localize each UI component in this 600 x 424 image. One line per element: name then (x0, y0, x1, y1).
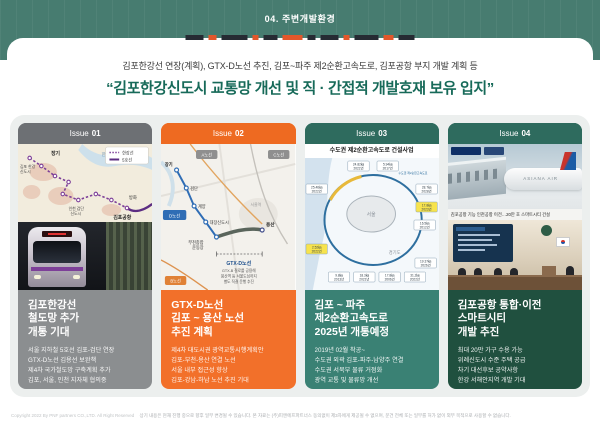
card-body-line: 서울 내부 접근성 향상 (171, 366, 285, 376)
svg-text:5.94㎞: 5.94㎞ (382, 161, 392, 166)
card-body: 최대 20만 가구 수용 가능 위례신도시 수준 주택 공급 차기 대선후보 공… (458, 346, 572, 386)
card-title-line: 개발 추진 (458, 326, 572, 339)
subway-train-photo (18, 222, 152, 290)
card-title: 김포한강선 철도망 추가 개통 기대 (28, 299, 142, 339)
svg-text:별도 직결 운행 추진: 별도 직결 운행 추진 (224, 279, 255, 284)
svg-text:25.46㎞: 25.46㎞ (311, 184, 323, 189)
card-body: 서울 지하철 5호선 김포-검단 연장 GTX-D노선 김용선 보완책 제4차 … (28, 346, 142, 386)
train-interior (106, 222, 152, 290)
road-segment-label: 17.8㎞ 2006년 (378, 272, 399, 282)
airport-news-photo: ASIANA AIR 김포공항 기능 인천공항 이전…20만 호 스마트시티 건… (448, 144, 582, 220)
card-body-line: 제4차 국가철도망 구축계획 추가 (28, 366, 142, 376)
svg-text:검단: 검단 (190, 185, 198, 191)
svg-text:한강선: 한강선 (122, 149, 134, 155)
svg-text:2006년: 2006년 (384, 277, 394, 282)
svg-text:신도시: 신도시 (20, 169, 31, 174)
issue-label: Issue (356, 129, 375, 138)
road-segment-label: 9.8㎞ 2013년 (328, 272, 349, 282)
svg-text:31.2㎞: 31.2㎞ (410, 272, 420, 277)
issue-number: 01 (92, 129, 101, 138)
airplane-tail (560, 152, 576, 170)
svg-text:2017년: 2017년 (382, 166, 392, 171)
svg-text:C노선: C노선 (274, 151, 285, 157)
news-banner (451, 147, 481, 155)
presentation-screen (453, 224, 513, 262)
road-segment-label: 28.7㎞ 2028년 (415, 184, 436, 194)
train-headlight (73, 275, 80, 279)
card-title-line: GTX-D노선 (171, 299, 285, 312)
line-pill-d: D노선 (163, 210, 186, 220)
line-pill-a: A노선 (196, 150, 217, 159)
issue-number: 03 (378, 129, 387, 138)
road-segment-label: 18.3㎞ 2021년 (353, 272, 374, 282)
svg-text:19.37㎞: 19.37㎞ (420, 258, 432, 263)
svg-text:2022년: 2022년 (409, 277, 419, 282)
card-title-line: 김포한강선 (28, 299, 142, 312)
train-front (28, 227, 86, 287)
card-title-line: 김포공항 통합·이전 (458, 299, 572, 312)
card-body-line: 한강 서해안지역 개발 기대 (458, 376, 572, 386)
assembly-photo (448, 220, 582, 290)
svg-text:방화: 방화 (129, 194, 137, 201)
card-body-line: 김포-강남-하남 노선 추진 기대 (171, 376, 285, 386)
road-segment-label: 25.46㎞ 2022년 (305, 184, 326, 194)
svg-text:2.52㎞: 2.52㎞ (311, 244, 321, 249)
card-title: 김포공항 통합·이전 스마트시티 개발 추진 (458, 299, 572, 339)
road-segment-label: 17.8㎞ 2023년 (415, 202, 436, 212)
svg-text:2012년: 2012년 (419, 225, 429, 230)
card-body-line: 2019년 02월 착공~ (315, 346, 429, 356)
road-segment-label: 24.82㎞ 2022년 (347, 161, 368, 171)
issue-01-text: 김포한강선 철도망 추가 개통 기대 서울 지하철 5호선 김포-검단 연장 G… (18, 290, 152, 389)
card-title-line: 철도망 추가 (28, 312, 142, 325)
road-segment-label: 31.2㎞ 2022년 (404, 272, 425, 282)
svg-text:경기도: 경기도 (388, 249, 400, 256)
card-body-line: 김포-부천-용산 연결 노선 (171, 356, 285, 366)
card-title-line: 김포 ~ 용산 노선 (171, 312, 285, 325)
svg-text:운동장: 운동장 (192, 244, 204, 250)
svg-text:9.8㎞: 9.8㎞ (335, 272, 343, 277)
council-emblem (541, 225, 552, 236)
airline-text: ASIANA AIR (523, 176, 558, 181)
svg-text:17.8㎞: 17.8㎞ (421, 202, 431, 207)
svg-text:용산: 용산 (266, 221, 275, 228)
decorative-dashes (186, 35, 415, 40)
card-title-line: 제2순환고속도로 (315, 312, 429, 325)
card-body-line: 서울 지하철 5호선 김포-검단 연장 (28, 346, 142, 356)
issue-label: Issue (70, 129, 89, 138)
main-title: “김포한강신도시 교통망 개선 및 직 · 간접적 개발호재 보유 입지” (7, 77, 593, 98)
road-segment-label: 2.52㎞ 2022년 (305, 244, 326, 254)
news-caption: 김포공항 기능 인천공항 이전…20만 호 스마트시티 건설 (448, 209, 582, 220)
issue-04-header: Issue 04 (448, 123, 582, 144)
issue-card-02: Issue 02 (161, 123, 295, 389)
issue-card-03: Issue 03 수도권 제2순환고속도로 건설사업 서울 경기도 수도권 제2… (305, 123, 439, 389)
svg-text:16.5㎞: 16.5㎞ (419, 220, 429, 225)
ring-road-map-title: 수도권 제2순환고속도로 건설사업 (305, 144, 439, 158)
card-title-line: 김포 ~ 파주 (315, 299, 429, 312)
svg-text:신도시: 신도시 (71, 211, 82, 216)
issue-card-04: Issue 04 ASIANA AIR 김포공항 기능 인천공항 이전…20만 … (448, 123, 582, 389)
svg-text:GTX-B 철로를 공용해: GTX-B 철로를 공용해 (222, 268, 256, 273)
map-legend: 한강선 5호선 (106, 147, 149, 164)
card-title: GTX-D노선 김포 ~ 용산 노선 추진 계획 (171, 299, 285, 339)
road-segment-label: 5.94㎞ 2017년 (376, 161, 397, 171)
svg-text:28.7㎞: 28.7㎞ (421, 184, 431, 189)
issue-01-media: 장기 김포 한강 신도시 인천 검단 신도시 한강 방화 김포공항 한강선 (18, 144, 152, 290)
svg-text:24.82㎞: 24.82㎞ (352, 161, 364, 166)
card-body-line: 제4차 대도시권 광역교통시행계획안 (171, 346, 285, 356)
svg-text:18.3㎞: 18.3㎞ (359, 272, 369, 277)
train-purple-stripe (31, 267, 83, 271)
train-windshield (33, 241, 81, 263)
card-body-line: 차기 대선후보 공약사항 (458, 366, 572, 376)
korean-flag (556, 237, 570, 247)
card-body-line: 수도권 외곽 김포-파주-남양주 연결 (315, 356, 429, 366)
issue-02-text: GTX-D노선 김포 ~ 용산 노선 추진 계획 제4차 대도시권 광역교통시행… (161, 290, 295, 389)
svg-text:김포공항: 김포공항 (113, 214, 131, 221)
svg-text:2013년: 2013년 (334, 277, 344, 282)
issue-01-header: Issue 01 (18, 123, 152, 144)
label-jangi: 장기 (51, 150, 60, 157)
issue-02-header: Issue 02 (161, 123, 295, 144)
card-body: 제4차 대도시권 광역교통시행계획안 김포-부천-용산 연결 노선 서울 내부 … (171, 346, 285, 386)
disclaimer-text: 상기 내용은 현재 진행 중으로 향후 일부 변경될 수 있습니다. 본 자료는… (139, 413, 510, 418)
issue-04-text: 김포공항 통합·이전 스마트시티 개발 추진 최대 20만 가구 수용 가능 위… (448, 290, 582, 389)
issue-03-text: 김포 ~ 파주 제2순환고속도로 2025년 개통예정 2019년 02월 착공… (305, 290, 439, 389)
section-header: 04. 주변개발환경 (0, 0, 600, 25)
desk-row (448, 275, 582, 290)
card-body-line: 김포, 서울, 인천 지자체 협의중 (28, 376, 142, 386)
ring-road-label: 수도권 제2순환고속도로 (398, 170, 427, 175)
line-pill-c: C노선 (268, 150, 289, 159)
svg-text:2021년: 2021년 (359, 277, 369, 282)
road-segment-label: 16.5㎞ 2012년 (413, 220, 434, 230)
svg-text:2028년: 2028년 (421, 189, 431, 194)
svg-text:2022년: 2022년 (311, 189, 321, 194)
svg-text:계양: 계양 (198, 203, 206, 210)
jet-bridge (448, 157, 506, 201)
subtitle: 김포한강선 연장(계획), GTX-D노선 추진, 김포~파주 제2순환고속도로… (7, 38, 593, 72)
svg-text:2026년: 2026년 (420, 263, 430, 268)
card-title-line: 개통 기대 (28, 326, 142, 339)
svg-text:서울: 서울 (366, 211, 375, 218)
svg-text:17.8㎞: 17.8㎞ (384, 272, 394, 277)
copyright-text: Copyright 2022 By PNF partners CO.,LTD. … (11, 413, 134, 418)
card-body-line: 위례신도시 수준 주택 공급 (458, 356, 572, 366)
card-title-line: 2025년 개통예정 (315, 326, 429, 339)
svg-text:서울역: 서울역 (251, 202, 262, 207)
svg-text:GTX-D노선: GTX-D노선 (227, 260, 252, 267)
issue-number: 04 (521, 129, 530, 138)
card-title-line: 추진 계획 (171, 326, 285, 339)
svg-text:장기: 장기 (165, 161, 173, 168)
issue-03-media: 수도권 제2순환고속도로 건설사업 서울 경기도 수도권 제2순환고속도로 24… (305, 144, 439, 290)
content-panel: 김포한강선 연장(계획), GTX-D노선 추진, 김포~파주 제2순환고속도로… (7, 38, 593, 424)
issue-card-01: Issue 01 (18, 123, 152, 389)
card-title: 김포 ~ 파주 제2순환고속도로 2025년 개통예정 (315, 299, 429, 339)
issues-container: Issue 01 (10, 115, 590, 397)
train-headlight (34, 275, 41, 279)
svg-text:B노선: B노선 (171, 277, 182, 283)
issue-label: Issue (499, 129, 518, 138)
card-title-line: 스마트시티 (458, 312, 572, 325)
svg-text:2023년: 2023년 (421, 207, 431, 212)
card-body: 2019년 02월 착공~ 수도권 외곽 김포-파주-남양주 연결 수도권 서북… (315, 346, 429, 386)
issue-number: 02 (235, 129, 244, 138)
svg-text:5호선: 5호선 (122, 156, 132, 162)
svg-text:2022년: 2022년 (353, 166, 363, 171)
svg-text:D노선: D노선 (169, 212, 180, 218)
hangang-line-map: 장기 김포 한강 신도시 인천 검단 신도시 한강 방화 김포공항 한강선 (18, 144, 152, 222)
train-led-sign (42, 231, 72, 237)
card-body-line: 수도권 서북부 물류 거점화 (315, 366, 429, 376)
card-body-line: GTX-D노선 김용선 보완책 (28, 356, 142, 366)
issue-02-media: D노선 A노선 C노선 B노선 장기 검단 계양 대장신도시 부천종합 운동장 … (161, 144, 295, 290)
svg-text:A노선: A노선 (202, 151, 213, 157)
news-banner (484, 147, 504, 155)
issue-03-header: Issue 03 (305, 123, 439, 144)
road-segment-label: 19.37㎞ 2026년 (414, 258, 435, 268)
svg-text:용산역 등 서울도심까지: 용산역 등 서울도심까지 (221, 273, 257, 278)
svg-text:2022년: 2022년 (311, 249, 321, 254)
line-pill-b: B노선 (165, 276, 186, 285)
card-body-line: 최대 20만 가구 수용 가능 (458, 346, 572, 356)
svg-text:대장신도시: 대장신도시 (210, 219, 229, 226)
card-body-line: 광역 교통 및 물류망 개선 (315, 376, 429, 386)
issue-label: Issue (213, 129, 232, 138)
issue-04-media: ASIANA AIR 김포공항 기능 인천공항 이전…20만 호 스마트시티 건… (448, 144, 582, 290)
footer: Copyright 2022 By PNF partners CO.,LTD. … (11, 413, 589, 419)
